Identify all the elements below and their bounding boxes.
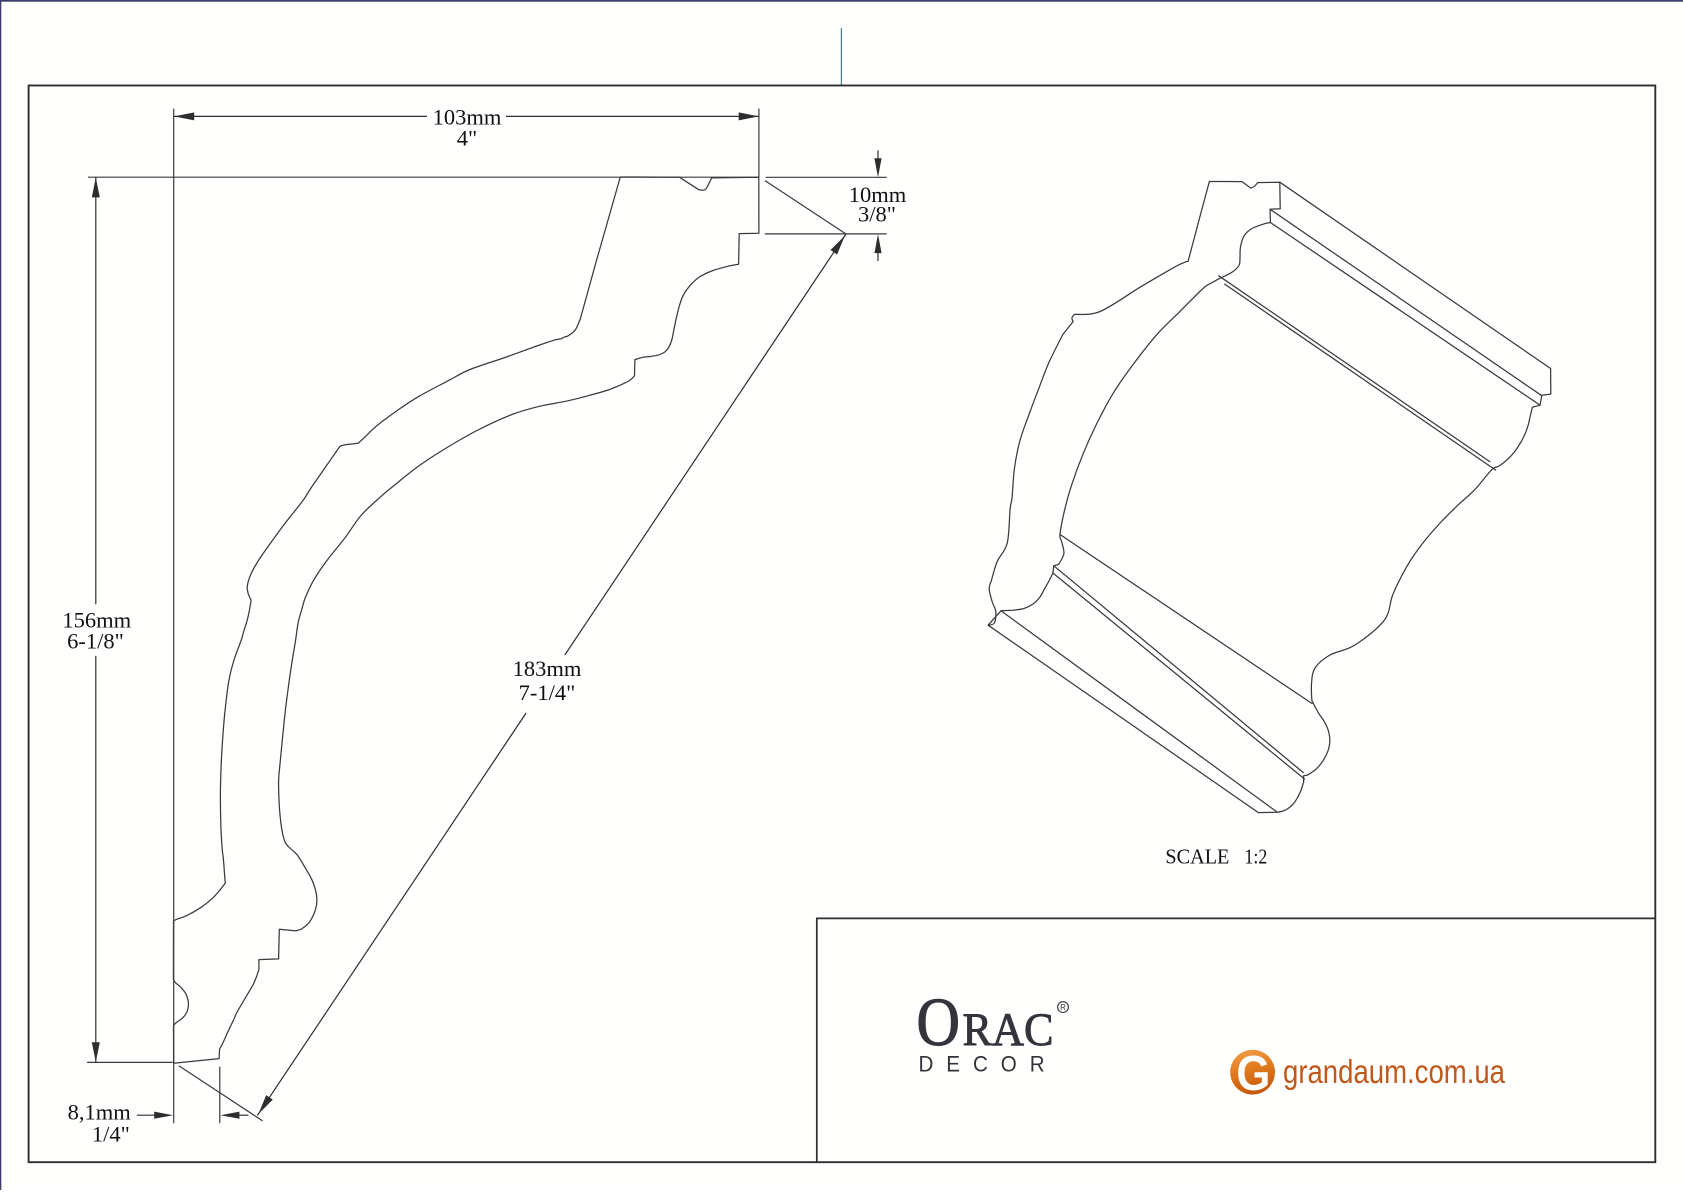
svg-text:DECOR: DECOR: [919, 1051, 1058, 1076]
svg-text:O: O: [917, 984, 961, 1060]
svg-text:SCALE: SCALE: [1165, 845, 1229, 869]
svg-text:R: R: [1060, 1003, 1066, 1012]
svg-text:4": 4": [457, 126, 477, 151]
svg-text:1:2: 1:2: [1244, 845, 1267, 869]
svg-text:3/8": 3/8": [858, 202, 896, 227]
svg-text:7-1/4": 7-1/4": [519, 680, 576, 705]
svg-text:RAC: RAC: [963, 1004, 1054, 1056]
svg-text:183mm: 183mm: [513, 656, 582, 681]
svg-text:1/4": 1/4": [92, 1121, 130, 1146]
svg-text:grandaum.com.ua: grandaum.com.ua: [1283, 1053, 1506, 1090]
svg-text:G: G: [1236, 1047, 1270, 1101]
svg-text:6-1/8": 6-1/8": [67, 629, 124, 654]
